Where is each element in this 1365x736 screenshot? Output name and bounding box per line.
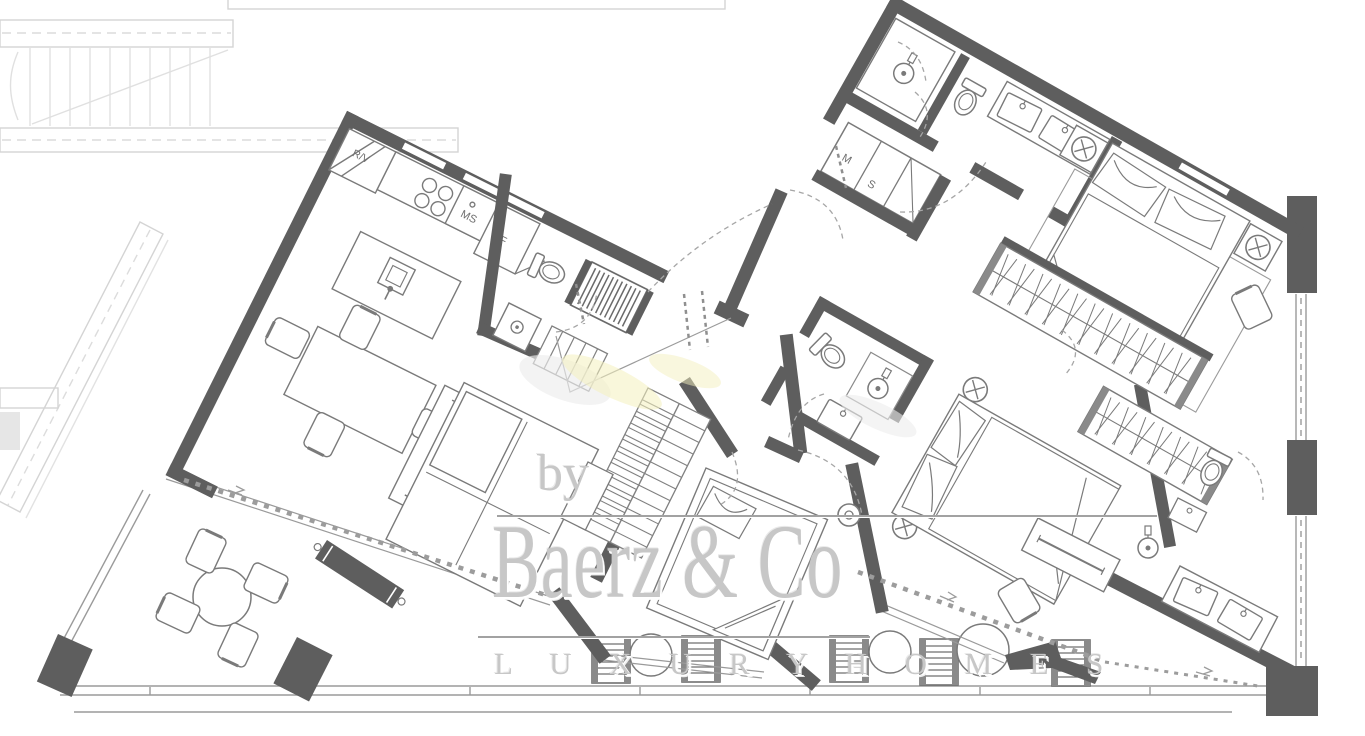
spine-foot-stub xyxy=(723,310,740,318)
terrace-planter-corner xyxy=(37,634,93,697)
right-wall-corner-block xyxy=(1266,666,1318,716)
terrace-bench xyxy=(309,536,411,613)
wc-shower xyxy=(493,303,541,351)
neighbor-stairs xyxy=(11,48,229,126)
balcony-lounger-set-1 xyxy=(592,634,720,683)
bedroom2-3-divider xyxy=(853,470,881,606)
hall-spine-wall xyxy=(729,197,779,311)
bedroom3-facade-left xyxy=(558,597,601,654)
balcony-right-door-arc xyxy=(1238,452,1263,500)
right-wall-mid-block xyxy=(1287,440,1317,515)
hall-door-arc xyxy=(790,190,843,240)
bedroom3-right-wall xyxy=(787,341,800,447)
terrace-round-table xyxy=(193,568,251,626)
floorplan-drawing: R/V MS F xyxy=(0,0,1365,736)
sink3-small xyxy=(1168,498,1207,532)
bedroom3 xyxy=(647,468,860,659)
terrace-planter xyxy=(273,637,332,701)
floorplan-page: R/V MS F xyxy=(0,0,1365,736)
terrace-dining-set xyxy=(154,527,289,668)
bed3 xyxy=(647,468,828,659)
right-wall-top-block xyxy=(1287,196,1317,293)
bedroom3-door-stub xyxy=(772,444,796,455)
